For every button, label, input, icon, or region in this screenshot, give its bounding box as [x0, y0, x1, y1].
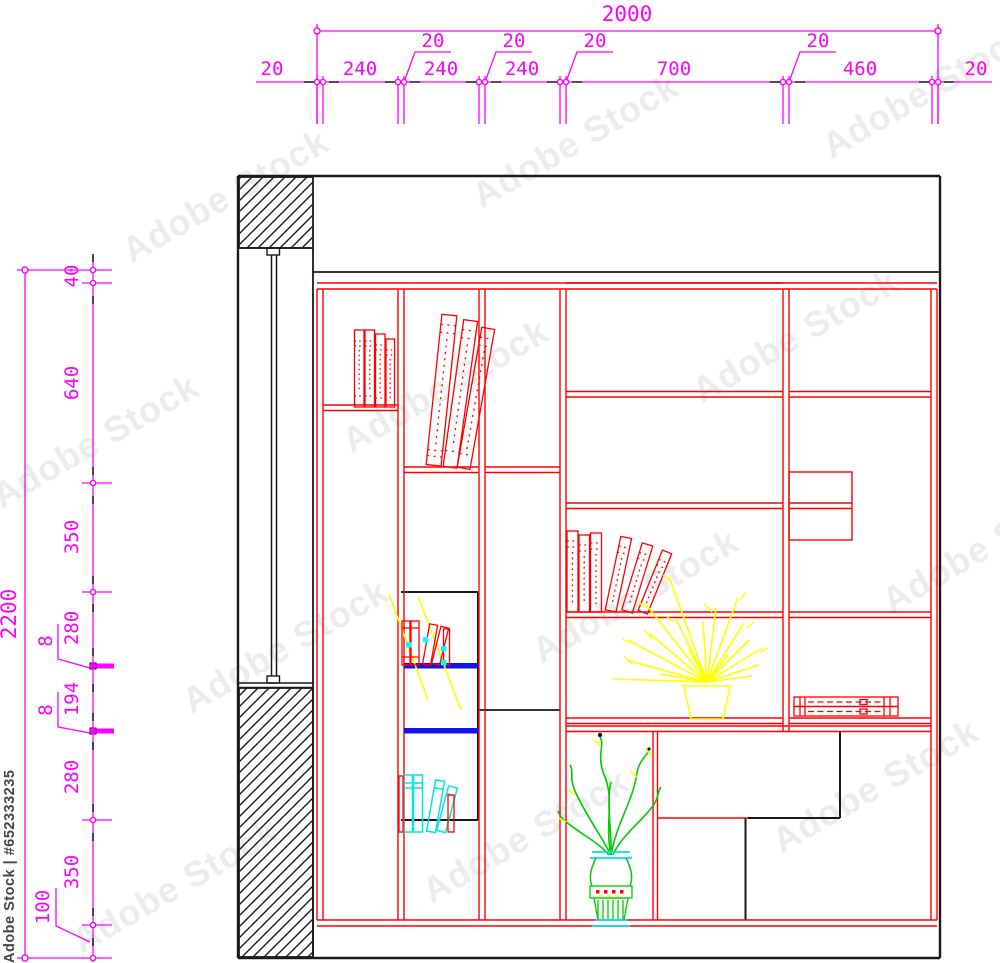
right-niche-shelf — [789, 503, 852, 509]
shelf-col3 — [485, 467, 560, 473]
books-middle-shelf — [567, 531, 672, 614]
shelf-right-1 — [789, 392, 931, 398]
partition-3 — [560, 289, 566, 920]
shelf-right-2 — [789, 612, 931, 618]
partition-4 — [783, 289, 789, 732]
dim-label-overall-width: 2000 — [602, 2, 653, 26]
dim-label-leader: 20 — [584, 30, 607, 52]
dim-label-leader: 8 — [35, 635, 57, 646]
partition-2 — [479, 289, 485, 920]
dim-label: 240 — [343, 58, 377, 80]
bottom-right-step — [746, 732, 841, 921]
dim-label: 240 — [505, 58, 539, 80]
shelf-right-3 — [789, 718, 931, 724]
dim-label-leader: 20 — [807, 30, 830, 52]
books-flat-right — [794, 697, 898, 716]
dim-label: 20 — [965, 58, 988, 80]
niche-black-box — [401, 592, 560, 820]
dim-label: 194 — [61, 682, 83, 716]
lower-divider — [653, 732, 658, 921]
shelf-mid-4 — [566, 718, 783, 724]
books-cyan-niche — [399, 775, 457, 833]
left-dimension-chain: 2200 40 640 350 280 194 280 350 8 8 100 — [0, 254, 114, 962]
dim-label-leader: 100 — [32, 890, 54, 924]
dim-label: 700 — [657, 58, 691, 80]
dim-label: 280 — [61, 611, 83, 645]
partition-left-side — [317, 289, 323, 920]
vine-tip-dot — [647, 747, 650, 750]
hatched-wall-top — [239, 177, 313, 248]
blue-accent-shelves — [404, 663, 478, 734]
books-accent-niche — [389, 594, 461, 710]
lower-zone-top — [566, 726, 931, 732]
shelf-col2 — [404, 467, 479, 473]
dim-label-overall-height: 2200 — [0, 589, 21, 640]
dim-label: 350 — [61, 855, 83, 889]
vine-tip-dot — [598, 733, 602, 737]
dim-label-leader: 20 — [503, 30, 526, 52]
right-niche-box — [789, 472, 852, 540]
dim-label-leader: 20 — [422, 30, 445, 52]
shelf-mid-2 — [566, 503, 783, 509]
cabinet-top-board — [317, 283, 937, 289]
partition-right-side — [931, 289, 937, 920]
vase — [590, 852, 632, 926]
dim-label: 20 — [261, 58, 284, 80]
dim-label: 240 — [424, 58, 458, 80]
dim-label: 640 — [61, 366, 83, 400]
wall-pole — [267, 248, 280, 683]
dim-label: 460 — [843, 58, 877, 80]
books-standing-col1 — [355, 330, 395, 407]
yellow-plant-pot — [681, 686, 733, 719]
dim-label: 280 — [61, 760, 83, 794]
cad-bookshelf-elevation-drawing: Adobe Stock Adobe Stock Adobe Stock Adob… — [0, 0, 1000, 963]
dim-label: 350 — [61, 520, 83, 554]
top-dimension-chain: 2000 20 240 240 240 700 460 20 20 20 20 … — [256, 2, 992, 124]
blue-shelf-2 — [404, 728, 478, 734]
dim-label-leader: 8 — [35, 704, 57, 715]
shelf-mid-3 — [566, 612, 783, 618]
hatched-wall-bottom — [239, 688, 313, 957]
shelf-col1 — [323, 405, 398, 411]
drawing-svg: 2000 20 240 240 240 700 460 20 20 20 20 … — [0, 0, 1000, 963]
dim-label: 40 — [61, 265, 83, 288]
plant-yellow — [612, 575, 768, 719]
cabinet — [317, 283, 937, 926]
shelf-mid-1 — [566, 392, 783, 398]
cabinet-bottom-shelf — [317, 920, 937, 926]
plant-green — [558, 733, 661, 926]
